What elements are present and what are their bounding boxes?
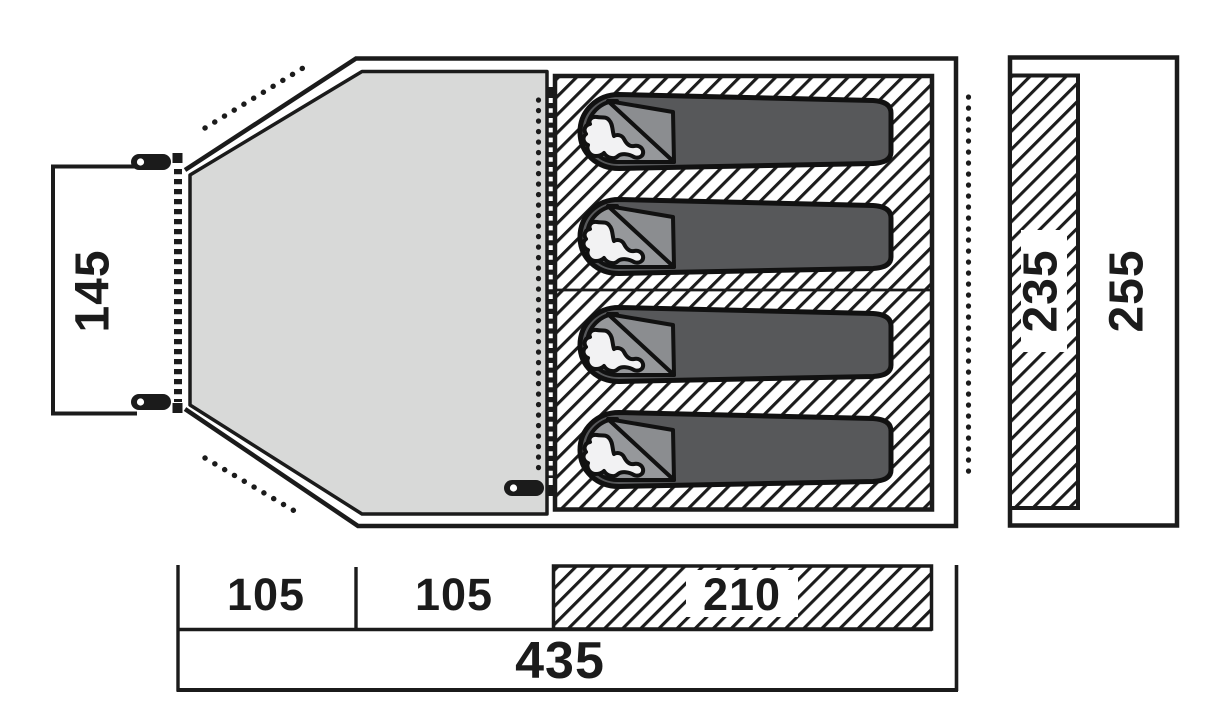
sleeping-bag (580, 413, 891, 487)
inner-length-label: 210 (703, 569, 781, 620)
tent-peg-icon (131, 394, 171, 410)
length-dimension-strip: 105 105 210 435 (177, 565, 959, 691)
sleeping-bag (580, 95, 891, 169)
total-length-label: 435 (515, 632, 605, 690)
inner-width-label: 235 (1015, 249, 1068, 332)
porch-front-length-label: 105 (227, 569, 305, 620)
total-width-label: 255 (1101, 249, 1154, 332)
tent-floorplan-diagram: 145 235 255 105 105 210 435 (0, 0, 1230, 728)
zipper-end-square-bottom (173, 403, 183, 413)
side-profile: 235 255 (1010, 58, 1177, 526)
tent-peg-icon (504, 480, 544, 496)
porch-rear-length-label: 105 (415, 569, 493, 620)
floorplan-svg: 145 235 255 105 105 210 435 (0, 0, 1230, 728)
sleeping-bag (580, 308, 891, 382)
sleeping-bag (580, 200, 891, 274)
entrance-width-label: 145 (67, 249, 120, 332)
zipper-end-square-top (173, 153, 183, 163)
